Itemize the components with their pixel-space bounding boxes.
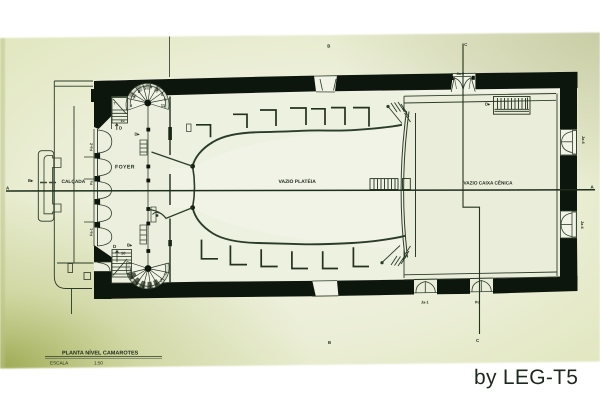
svg-text:10: 10 — [121, 251, 126, 256]
svg-text:by LEG-T5: by LEG-T5 — [474, 366, 578, 389]
svg-text:10: 10 — [121, 119, 125, 123]
svg-text:Pd: Pd — [475, 301, 481, 305]
svg-text:7: 7 — [114, 102, 116, 106]
svg-text:PLANTA NÍVEL CAMAROTES: PLANTA NÍVEL CAMAROTES — [62, 349, 139, 356]
svg-text:B▸: B▸ — [127, 243, 133, 248]
svg-text:B▸: B▸ — [28, 178, 34, 183]
svg-text:Ja-4: Ja-4 — [580, 221, 584, 229]
svg-text:CALÇADA: CALÇADA — [62, 179, 86, 185]
svg-text:11: 11 — [161, 103, 166, 108]
svg-text:Pa: Pa — [90, 181, 94, 185]
svg-text:Fa-2: Fa-2 — [90, 143, 94, 151]
svg-text:Ja-2: Ja-2 — [457, 72, 465, 76]
svg-text:Ja-4: Ja-4 — [581, 136, 585, 144]
svg-text:D: D — [119, 126, 122, 131]
svg-text:C: C — [464, 42, 467, 47]
svg-text:Ja-1: Ja-1 — [421, 301, 429, 305]
svg-text:B: B — [327, 43, 330, 48]
svg-text:ESCALA: ESCALA — [50, 361, 69, 366]
svg-text:FOYER: FOYER — [115, 165, 135, 171]
svg-text:D▸: D▸ — [135, 132, 141, 137]
svg-text:B: B — [328, 340, 331, 345]
svg-text:D▸: D▸ — [485, 102, 491, 107]
svg-text:1:50: 1:50 — [94, 361, 103, 366]
svg-text:VAZIO PLATÉIA: VAZIO PLATÉIA — [279, 178, 317, 185]
svg-text:Fa-1: Fa-1 — [90, 228, 94, 236]
svg-text:VAZIO CAIXA CÊNICA: VAZIO CAIXA CÊNICA — [464, 179, 514, 185]
